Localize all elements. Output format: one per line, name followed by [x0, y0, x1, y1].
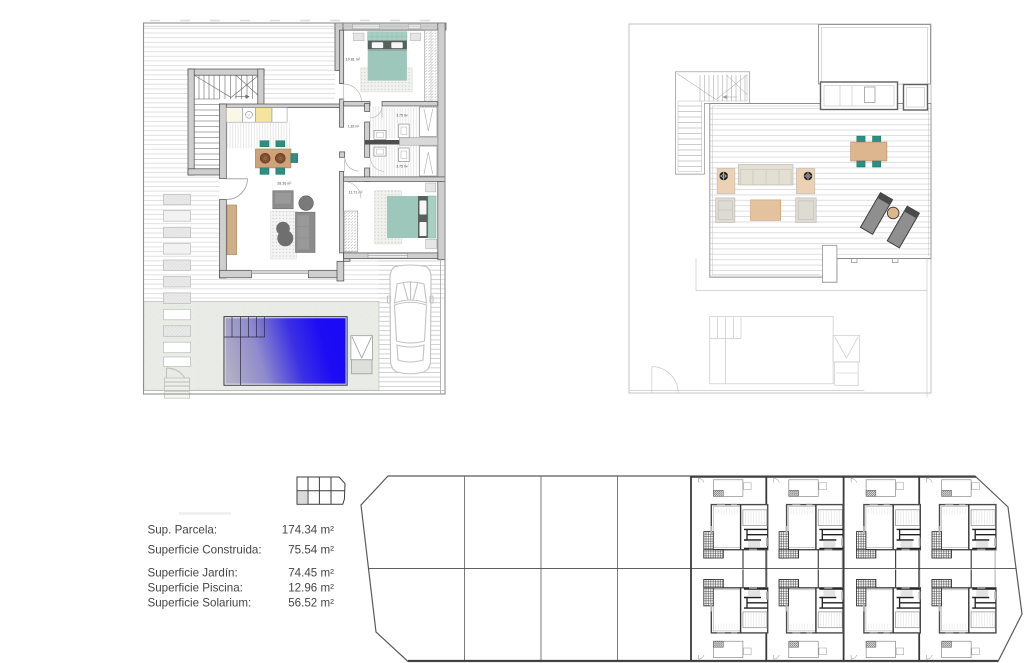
svg-text:Superficie Construida:: Superficie Construida: [148, 544, 262, 557]
svg-text:1.82 m²: 1.82 m² [348, 125, 360, 129]
svg-text:11.71 m²: 11.71 m² [349, 191, 364, 195]
svg-text:Superficie Jardín:: Superficie Jardín: [148, 567, 238, 580]
svg-text:Superficie Solarium:: Superficie Solarium: [148, 597, 252, 610]
svg-text:3.75 m²: 3.75 m² [396, 113, 408, 117]
svg-text:Sup. Parcela:: Sup. Parcela: [148, 524, 218, 537]
svg-text:56.52 m²: 56.52 m² [288, 597, 334, 610]
svg-text:174.34 m²: 174.34 m² [282, 524, 334, 537]
svg-text:74.45 m²: 74.45 m² [288, 567, 334, 580]
svg-text:28.36 m²: 28.36 m² [277, 182, 292, 186]
svg-text:10.81 m²: 10.81 m² [346, 58, 361, 62]
svg-text:3.75 m²: 3.75 m² [396, 165, 408, 169]
svg-text:12.96 m²: 12.96 m² [288, 582, 334, 595]
svg-text:Superficie Piscina:: Superficie Piscina: [148, 582, 243, 595]
svg-text:75.54 m²: 75.54 m² [288, 544, 334, 557]
